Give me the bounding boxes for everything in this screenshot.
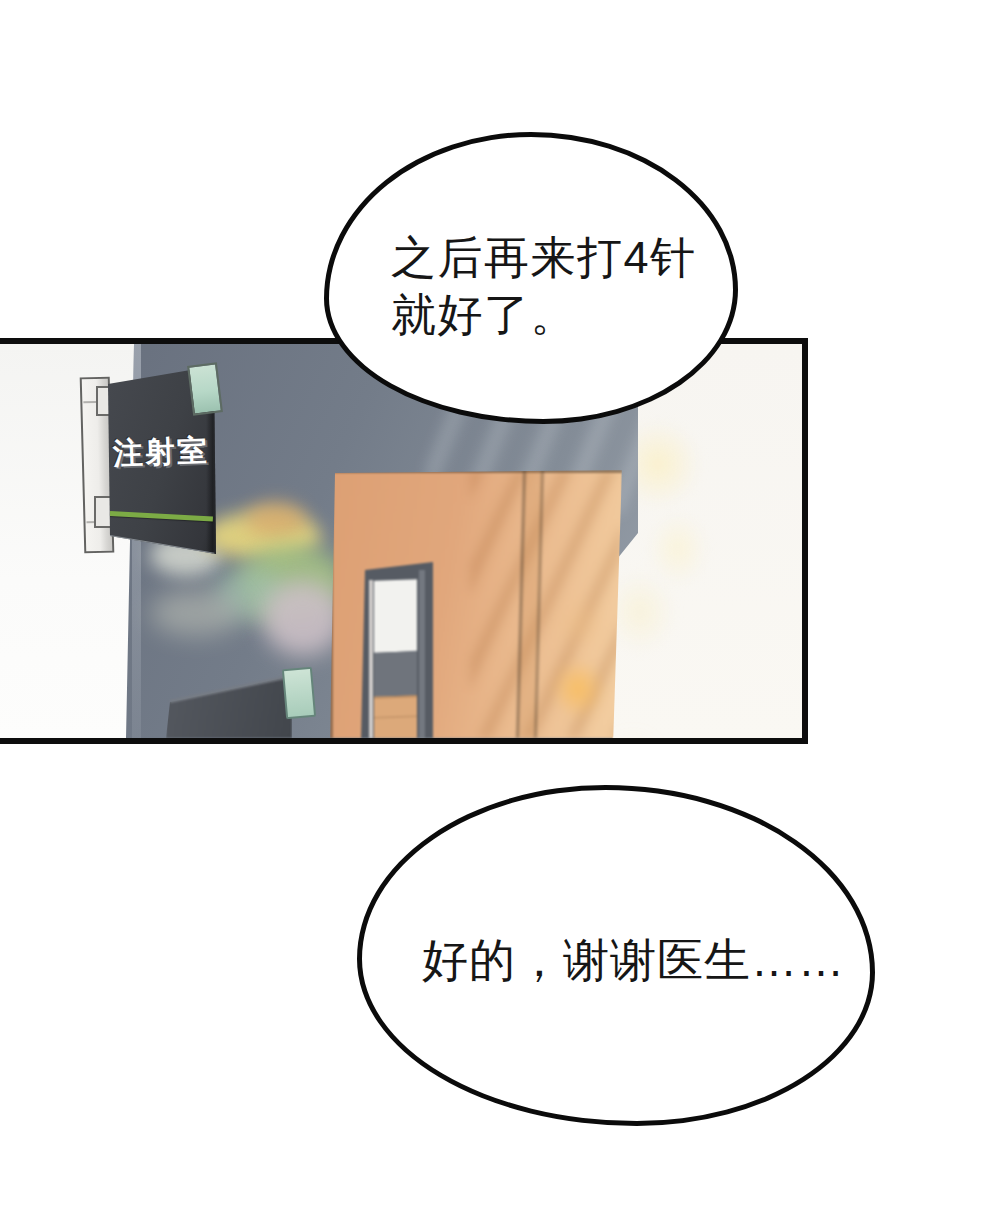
patient-dialogue: 好的，谢谢医生……: [422, 934, 845, 986]
lens-flare-pink: [262, 580, 344, 656]
door-window: [374, 579, 417, 653]
comic-page: { "page": { "type": "comic-page", "backg…: [0, 0, 1000, 1219]
warm-light-glow: [606, 738, 660, 744]
sun-flare-lower: [552, 660, 604, 718]
speech-bubble-patient: 好的，谢谢医生……: [357, 785, 875, 1126]
door: [361, 562, 433, 738]
door-band: [374, 651, 417, 697]
sign-label: 注射室: [110, 430, 211, 474]
door-jamb-right: [419, 570, 425, 738]
orange-wall: [330, 470, 622, 738]
scene-panel: 注射室: [0, 338, 808, 744]
sun-flare-upper: [556, 596, 602, 652]
doctor-dialogue: 之后再来打4针 就好了。: [391, 229, 697, 343]
door-jamb-highlight: [369, 580, 373, 738]
sign-mint-tab: [187, 362, 223, 415]
lens-flare-faint: [150, 590, 242, 636]
door-lower-panel: [374, 695, 417, 741]
lens-flare-orange: [246, 502, 306, 538]
sign-green-stripe: [110, 511, 213, 521]
wall-panel-mint-tab: [282, 667, 316, 719]
speech-bubble-doctor: 之后再来打4针 就好了。: [324, 132, 738, 424]
